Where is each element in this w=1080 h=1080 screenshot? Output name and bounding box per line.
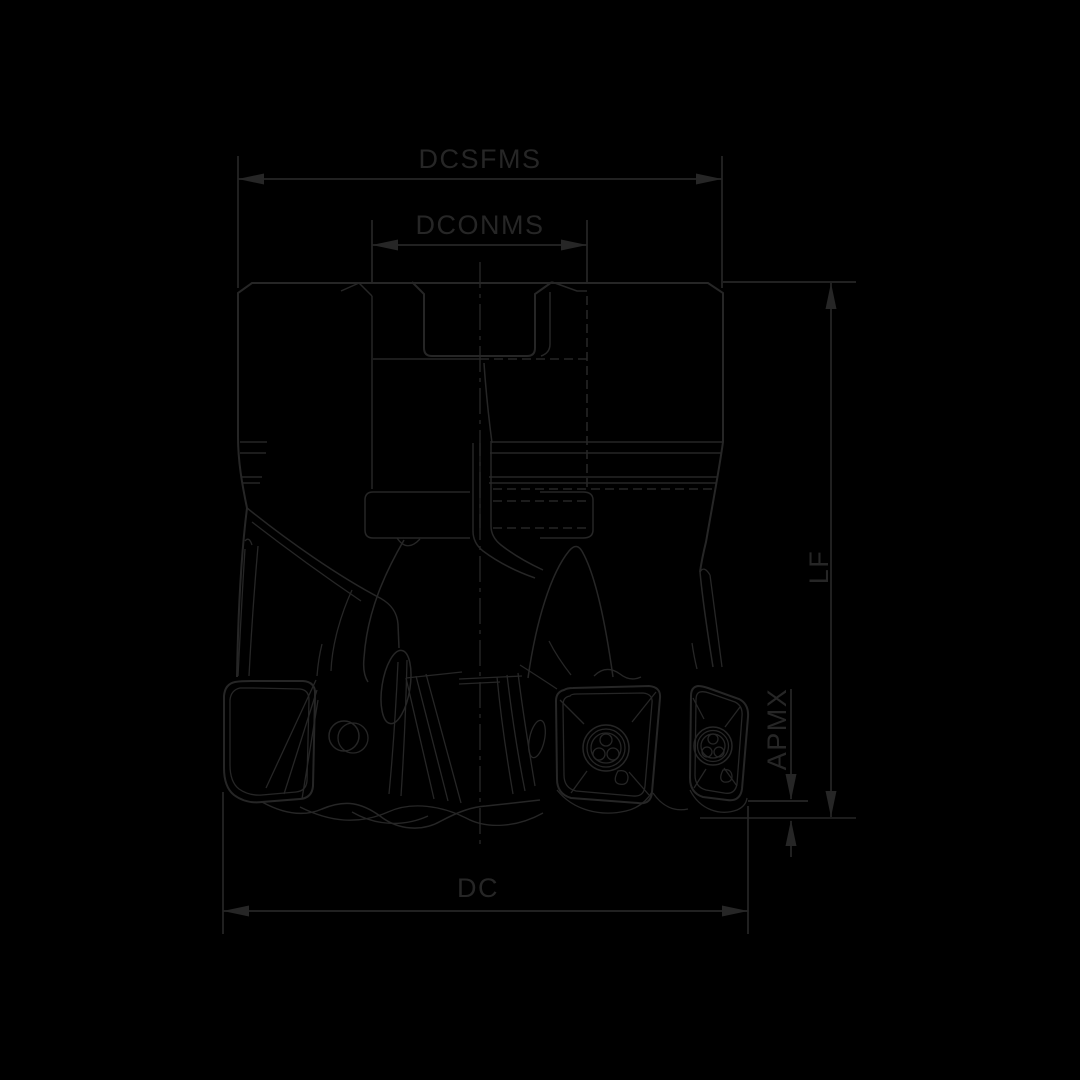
- label-dcsfms: DCSFMS: [419, 144, 542, 174]
- label-dc: DC: [457, 873, 499, 903]
- drive-slot: [412, 282, 552, 443]
- right-screw-hole-icon: [694, 727, 732, 765]
- left-flute: [238, 508, 404, 682]
- collar-grooves: [240, 442, 722, 528]
- front-band: [365, 492, 593, 546]
- right-fin: [692, 569, 722, 669]
- label-apmx: APMX: [762, 688, 792, 771]
- right-insert: [690, 686, 748, 812]
- technical-drawing-page: DCSFMS DCONMS LF APMX DC: [0, 0, 1080, 1080]
- center-screw-hole-icon: [583, 725, 629, 771]
- milling-cutter-dimension-drawing: DCSFMS DCONMS LF APMX DC: [0, 0, 1080, 1080]
- index-mark-icon: [615, 771, 628, 785]
- center-insert: [556, 669, 660, 813]
- left-pocket: [329, 648, 462, 803]
- bottom-scallops: [262, 793, 688, 828]
- center-fin: [528, 546, 613, 678]
- dimension-apmx: APMX: [748, 688, 808, 857]
- front-flute: [473, 443, 543, 578]
- torx-lobe-icon: [600, 734, 612, 746]
- label-lf: LF: [804, 550, 834, 585]
- label-dconms: DCONMS: [416, 210, 545, 240]
- center-seat: [459, 665, 557, 794]
